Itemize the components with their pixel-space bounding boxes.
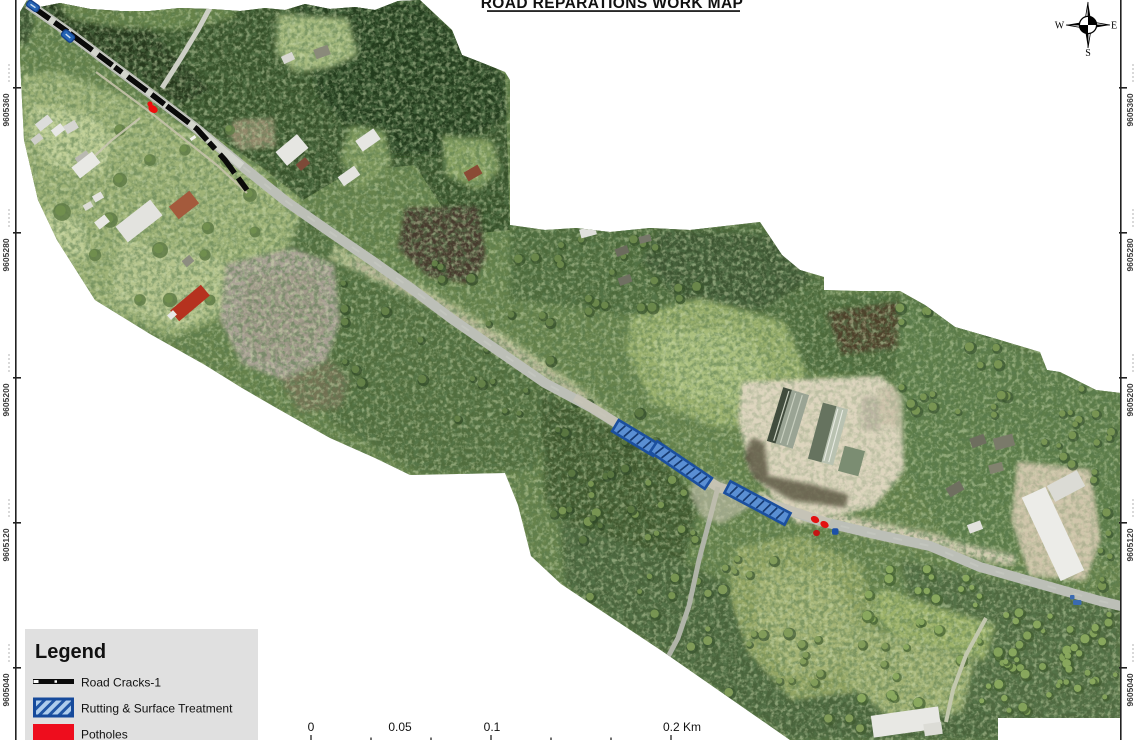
svg-text:Rutting & Surface Treatment: Rutting & Surface Treatment — [81, 702, 233, 716]
svg-text:9605040: 9605040 — [1125, 673, 1135, 706]
svg-text:S: S — [1085, 48, 1091, 59]
svg-text:9605200: 9605200 — [1, 383, 11, 416]
svg-text:W: W — [1055, 21, 1065, 32]
svg-text:Legend: Legend — [35, 641, 106, 663]
svg-text:9605360: 9605360 — [1, 93, 11, 126]
svg-text:E: E — [1111, 21, 1117, 32]
svg-text:Road Cracks-1: Road Cracks-1 — [81, 676, 161, 690]
svg-text:9605040: 9605040 — [1, 673, 11, 706]
svg-text:9605280: 9605280 — [1, 238, 11, 271]
svg-text:9605280: 9605280 — [1125, 238, 1135, 271]
svg-text:0.1: 0.1 — [484, 720, 501, 734]
svg-text:0: 0 — [308, 720, 315, 734]
svg-text:Potholes: Potholes — [81, 728, 128, 740]
svg-text:0.05: 0.05 — [388, 720, 412, 734]
svg-text:9605120: 9605120 — [1125, 528, 1135, 561]
svg-text:9605200: 9605200 — [1125, 383, 1135, 416]
svg-text:9605360: 9605360 — [1125, 93, 1135, 126]
svg-text:0.2 Km: 0.2 Km — [663, 720, 701, 734]
svg-text:9605120: 9605120 — [1, 528, 11, 561]
